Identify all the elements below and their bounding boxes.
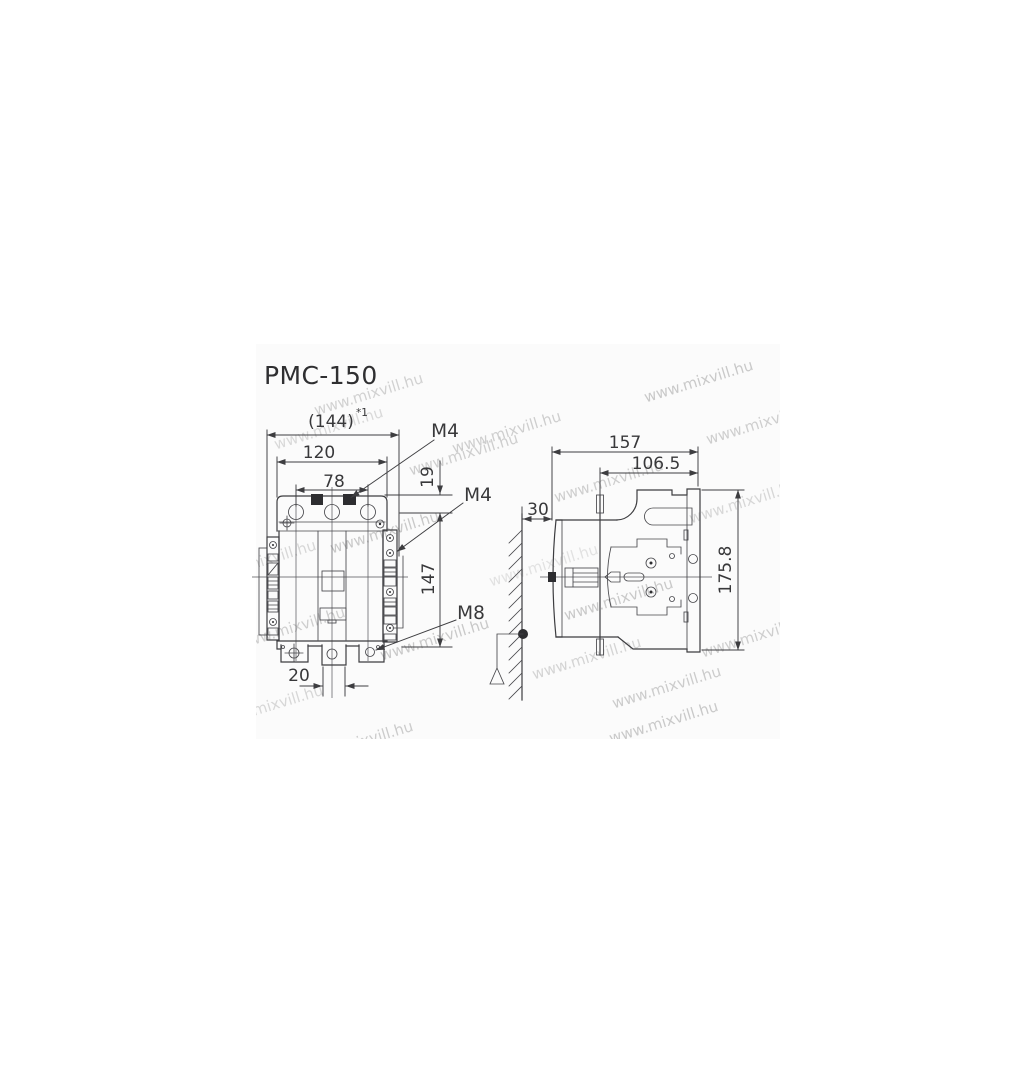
dim-mount-plane-to-back-text: 106.5 xyxy=(632,454,681,474)
dim-height-text: 175.8 xyxy=(716,546,736,595)
label-main-terminal-screw-text: M8 xyxy=(457,603,485,624)
label-aux-terminal-screw-text: M4 xyxy=(464,485,492,506)
dim-top-edge-to-mount-text: 19 xyxy=(418,466,438,488)
dimension-drawing: www.mixvill.huwww.mixvill.huwww.mixvill.… xyxy=(0,0,1024,1088)
label-top-terminal-screw-text: M4 xyxy=(431,421,459,442)
dim-terminal-spacing-text: 78 xyxy=(323,472,345,492)
dim-mounting-width-text: 120 xyxy=(303,443,335,463)
shaft-tip xyxy=(548,572,556,582)
dim-overall-width-note: *1 xyxy=(356,407,368,419)
dim-wall-clearance: 30 xyxy=(522,500,552,520)
drawing-title: PMC-150 xyxy=(264,361,378,390)
dim-mounting-height-text: 147 xyxy=(419,563,439,595)
front-contact-pad-left xyxy=(311,494,323,505)
dim-overall-width-text: (144) xyxy=(308,412,354,432)
page: www.mixvill.huwww.mixvill.huwww.mixvill.… xyxy=(0,0,1024,1088)
dim-bottom-terminal-width-text: 20 xyxy=(288,666,310,686)
dim-wall-clearance-text: 30 xyxy=(527,500,549,520)
dim-depth-text: 157 xyxy=(609,433,641,453)
